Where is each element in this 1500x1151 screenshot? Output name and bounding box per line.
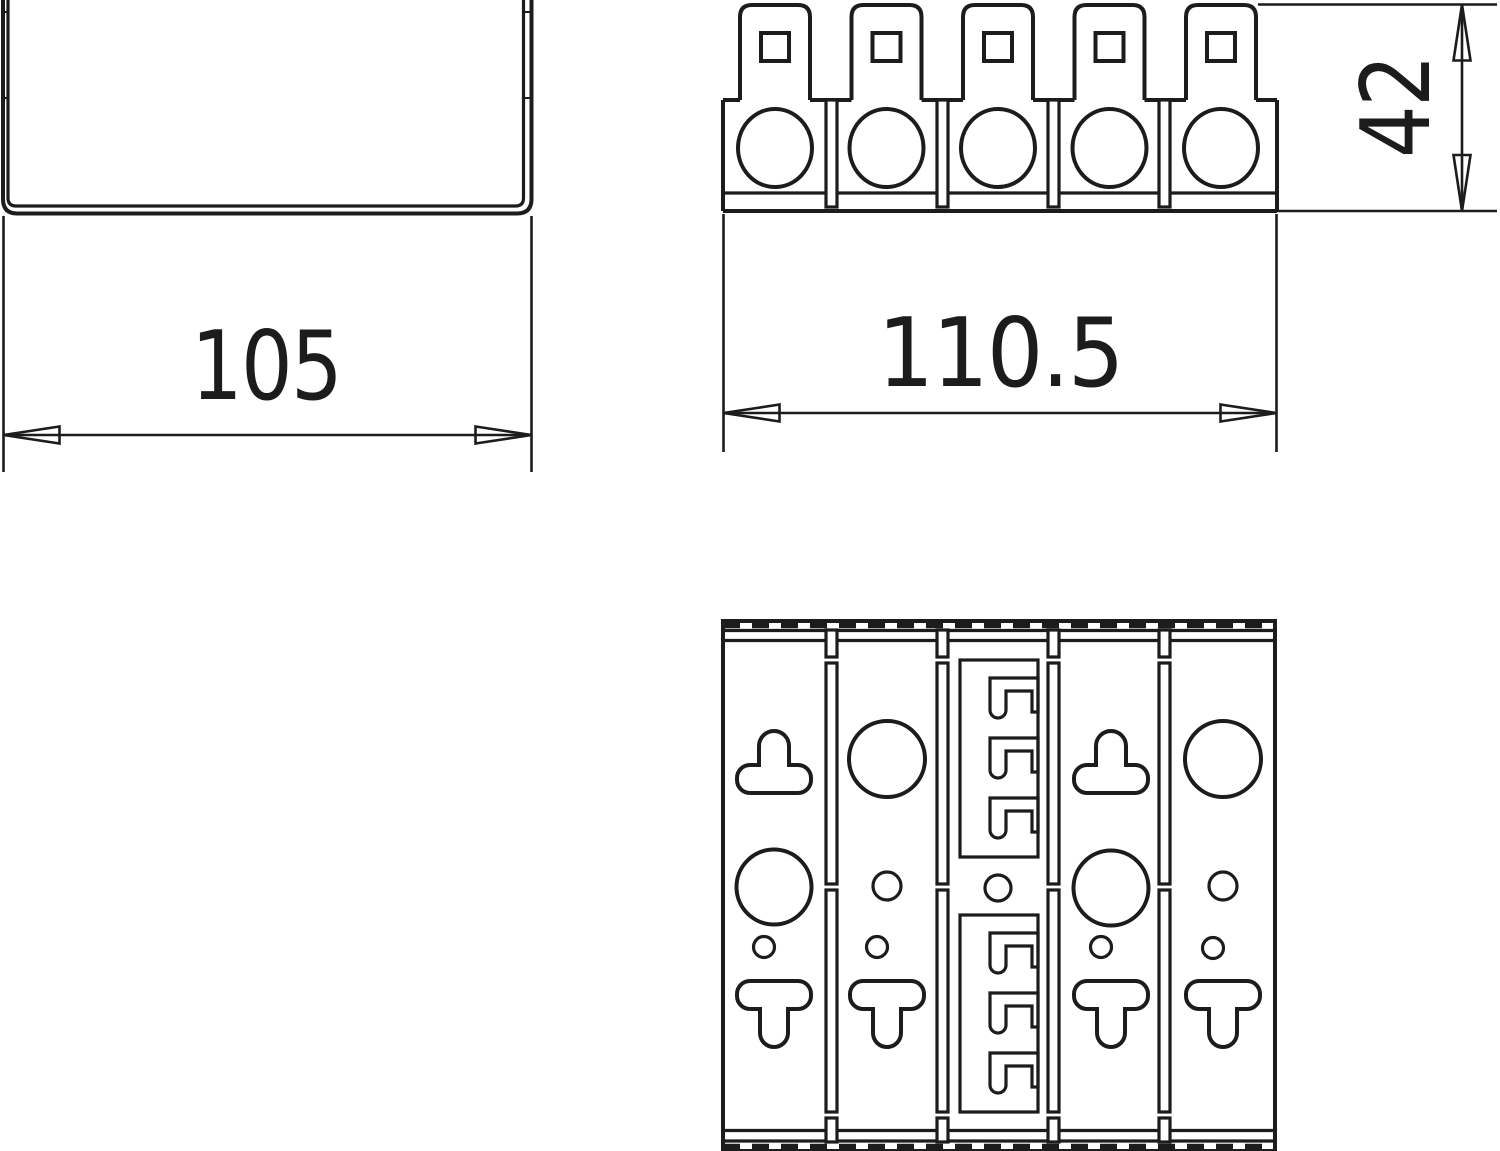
dimension-strip-width: 110.5	[724, 214, 1277, 452]
separator-slot-segment	[1048, 663, 1059, 884]
separator-slot-segment	[937, 1118, 948, 1142]
t-slot-up	[737, 731, 811, 793]
separator-slot-segment	[826, 630, 837, 657]
channel-outer-contour	[3, 0, 532, 214]
dimension-channel-width: 105	[4, 216, 532, 472]
t-slot-down	[850, 981, 924, 1047]
terminal-tab	[963, 5, 1033, 100]
separator-slot-segment	[1048, 1118, 1059, 1142]
dimension-value-110-5: 110.5	[878, 299, 1123, 409]
mounting-hole-small	[1091, 937, 1112, 958]
mounting-hole-small	[754, 937, 775, 958]
channel-inner-contour	[8, 0, 524, 206]
separator-slot-column	[937, 630, 948, 1142]
terminal-tab	[1075, 5, 1145, 100]
separator-slot-segment	[937, 630, 948, 657]
separator-slot	[826, 100, 837, 207]
tab-square-hole	[761, 33, 789, 61]
dimension-value-105: 105	[191, 312, 341, 422]
separator-slot-segment	[826, 1118, 837, 1142]
separator-slot-column	[1048, 630, 1059, 1142]
wire-opening-circle	[961, 109, 1035, 187]
terminal-tab	[852, 5, 922, 100]
u-channel-profile-view	[3, 0, 532, 214]
separator-slot-segment	[1159, 890, 1170, 1112]
tab-square-hole	[873, 33, 901, 61]
mounting-hole-large	[1185, 721, 1261, 797]
separator-slot	[1048, 100, 1059, 207]
mounting-hole-center	[985, 875, 1011, 901]
t-slot-down	[1074, 981, 1148, 1047]
bottom-column-4	[1074, 731, 1149, 1047]
wire-opening-circle	[738, 109, 812, 187]
separator-slot-segment	[1048, 890, 1059, 1112]
mounting-hole-large	[849, 721, 925, 797]
bottom-column-3	[960, 660, 1038, 1112]
separator-slot-column	[1159, 630, 1170, 1142]
terminal-tab	[740, 5, 810, 100]
separator-slot-segment	[1159, 1118, 1170, 1142]
terminal-tab	[1186, 5, 1256, 100]
t-slot-up	[1074, 731, 1148, 793]
separator-slot	[1159, 100, 1170, 207]
wire-opening-circle	[1184, 109, 1258, 187]
separator-slot-segment	[937, 890, 948, 1112]
mounting-hole-small	[1203, 938, 1224, 959]
dimension-strip-height: 42	[1258, 5, 1497, 212]
tab-square-hole	[1207, 33, 1235, 61]
t-slot-down	[737, 981, 811, 1047]
wire-opening-circle	[1073, 109, 1147, 187]
bottom-column-1	[737, 731, 812, 1047]
mounting-hole-small	[867, 937, 888, 958]
technical-drawing-canvas: 105	[0, 0, 1500, 1151]
bottom-column-2	[849, 721, 925, 1047]
separator-slot-segment	[826, 663, 837, 884]
mounting-hole-medium	[873, 872, 901, 900]
separator-slot-column	[826, 630, 837, 1142]
technical-drawing-page: 105	[0, 0, 1500, 1151]
t-slot-down	[1186, 981, 1260, 1047]
separator-slot-segment	[1159, 663, 1170, 884]
mounting-hole-medium	[1209, 872, 1237, 900]
separator-slot-segment	[1159, 630, 1170, 657]
separator-slot-segment	[1048, 630, 1059, 657]
tab-square-hole	[1096, 33, 1124, 61]
bottom-column-5	[1185, 721, 1261, 1047]
terminal-strip-bottom-view	[723, 621, 1275, 1151]
mounting-hole-large	[1074, 851, 1149, 926]
mounting-hole-large	[737, 850, 812, 925]
separator-slot-segment	[937, 663, 948, 884]
separator-slot	[937, 100, 948, 207]
wire-opening-circle	[850, 109, 924, 187]
dimension-value-42: 42	[1342, 56, 1452, 158]
terminal-strip-side-view	[723, 5, 1277, 211]
separator-slot-segment	[826, 890, 837, 1112]
tab-square-hole	[984, 33, 1012, 61]
